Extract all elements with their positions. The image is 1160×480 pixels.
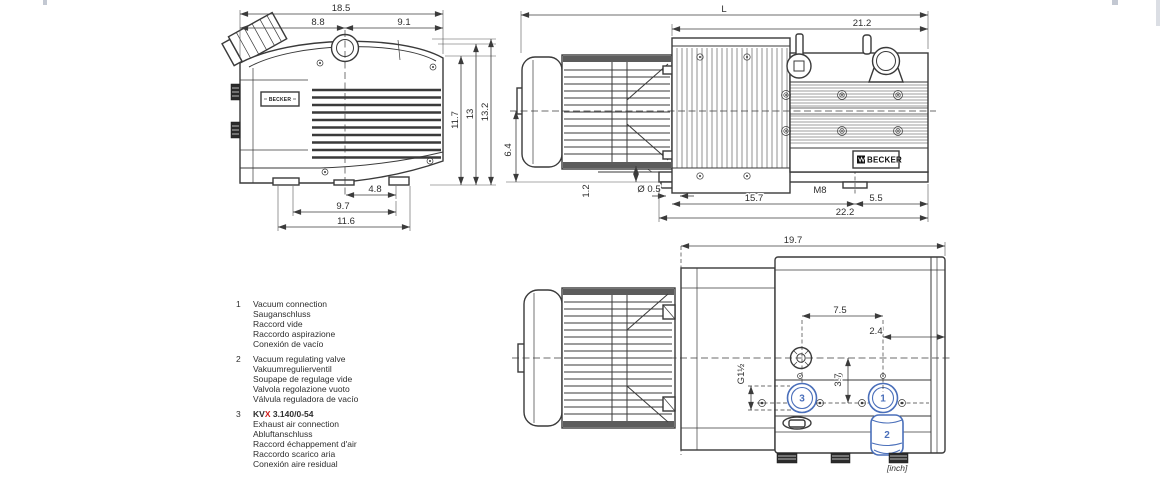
callout-1: 1 (880, 394, 886, 405)
latch-icon (783, 417, 811, 429)
legend-line: Conexión de vacío (253, 339, 335, 349)
nameplate: BECKER (261, 92, 299, 106)
view-top: 3 1 2 19.7 (512, 235, 952, 473)
dim-foot-hole: Ø 0.5 (637, 184, 660, 195)
dim-feet1: 4.8 (368, 184, 381, 195)
dim-total-width: 18.5 (332, 3, 351, 14)
dim-port-thread: G1½ (736, 364, 747, 385)
view-side: BECKER 18.5 8.8 9.1 (221, 3, 496, 231)
legend-item-3: 3 KVX 3.140/0-54 Exhaust air connection … (236, 409, 386, 469)
legend-line: Soupape de regulage vide (253, 374, 358, 384)
dim-axis-height: 6.4 (503, 143, 514, 156)
dim-left: 8.8 (311, 17, 324, 28)
legend-line: Conexión aire residual (253, 459, 357, 469)
unit-note: [inch] (886, 463, 908, 473)
dim-h1: 11.7 (450, 111, 461, 129)
legend-line: Raccord vide (253, 319, 335, 329)
dim-total-length: L (721, 4, 726, 15)
legend-item-number: 2 (236, 354, 253, 404)
dim-feet2: 9.7 (336, 201, 349, 212)
becker-logo: BECKER (853, 151, 902, 168)
oil-knob-icon (231, 84, 240, 138)
model-number: KVX 3.140/0-54 (253, 409, 357, 419)
pump-housing-top (757, 257, 945, 453)
dim-pump-length: 21.2 (853, 18, 872, 29)
legend: 1 Vacuum connection Sauganschluss Raccor… (236, 299, 386, 474)
dim-base-step: 1.2 (581, 184, 592, 197)
legend-line: Raccordo scarico aria (253, 449, 357, 459)
legend-line: Valvola regolazione vuoto (253, 384, 358, 394)
legend-line: Vacuum connection (253, 299, 335, 309)
legend-item-2: 2 Vacuum regulating valve Vakuumregulier… (236, 354, 386, 404)
dim-length: 19.7 (784, 235, 803, 246)
screen-edge-artifact (43, 0, 47, 5)
dim-port-offset: 3.7 (833, 373, 844, 386)
becker-logo-text: BECKER (867, 156, 902, 165)
exhaust-port-callout: 3 (788, 384, 817, 413)
dim-port-to-end: 2.4 (869, 326, 882, 337)
view-front: BECKER L 21.2 6.4 1.2 Ø 0.5 15.7 M8 (503, 4, 936, 222)
fan-cover (681, 268, 775, 450)
pump-housing (672, 38, 790, 193)
dim-foot-spacing: 15.7 (745, 193, 764, 204)
callout-3: 3 (799, 394, 805, 405)
drawing-canvas: BECKER 18.5 8.8 9.1 (0, 0, 1160, 480)
legend-line: Raccord échappement d'air (253, 439, 357, 449)
motor (517, 55, 672, 169)
dim-port-spacing: 7.5 (833, 305, 846, 316)
legend-line: Vacuum regulating valve (253, 354, 358, 364)
legend-item-number: 3 (236, 409, 253, 469)
screen-edge-artifact (1156, 0, 1160, 26)
dim-base-length: 22.2 (836, 207, 855, 218)
legend-line: Válvula reguladora de vacío (253, 394, 358, 404)
thread-label: M8 (813, 185, 826, 196)
regulating-valve-callout: 2 (871, 415, 903, 455)
legend-line: Raccordo aspirazione (253, 329, 335, 339)
legend-line: Abluftanschluss (253, 429, 357, 439)
screen-edge-artifact (1112, 0, 1118, 5)
oil-dipstick-icon (863, 35, 871, 54)
legend-line: Vakuumregulierventil (253, 364, 358, 374)
dim-foot-to-end: 5.5 (869, 193, 882, 204)
dim-feet3: 11.6 (337, 216, 355, 227)
legend-item-number: 1 (236, 299, 253, 349)
dim-right: 9.1 (397, 17, 410, 28)
legend-item-1: 1 Vacuum connection Sauganschluss Raccor… (236, 299, 386, 349)
legend-line: Exhaust air connection (253, 419, 357, 429)
nameplate-text: BECKER (269, 97, 292, 103)
dim-h2: 13 (465, 109, 476, 120)
callout-2: 2 (884, 430, 890, 441)
legend-line: Sauganschluss (253, 309, 335, 319)
dim-h3: 13.2 (480, 103, 491, 122)
pump-head: BECKER (782, 34, 929, 172)
